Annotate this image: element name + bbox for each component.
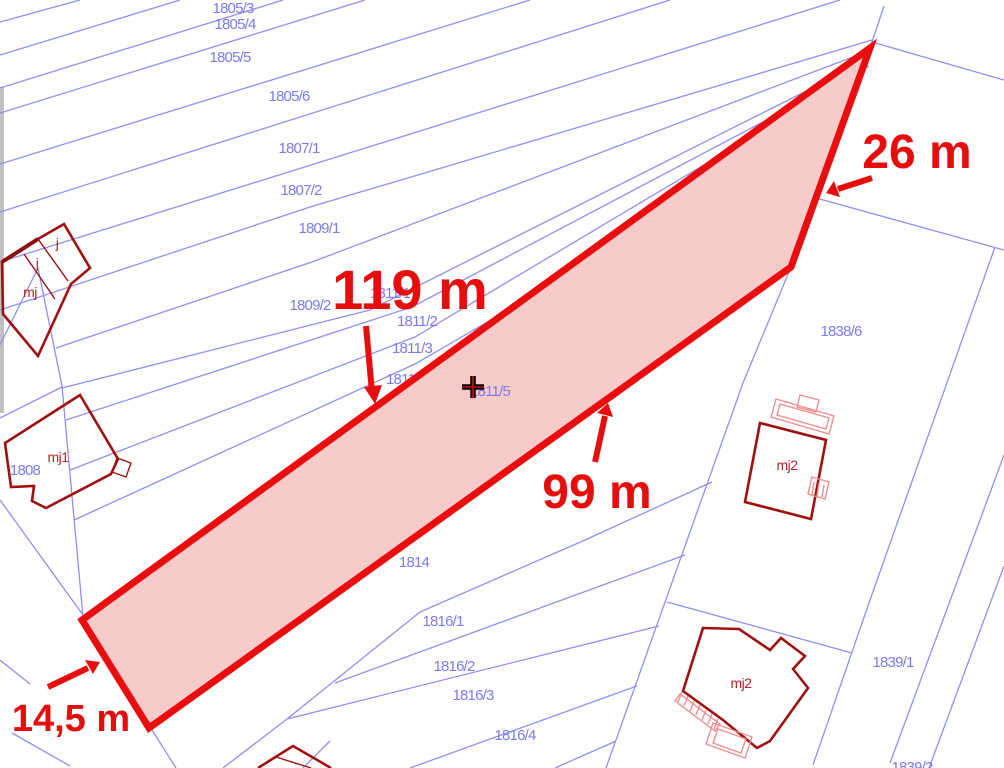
parcel-label: 1809/2 [289, 297, 331, 314]
parcel-label: 1814 [399, 554, 430, 571]
building-label: mj2 [776, 457, 798, 473]
parcel-label: 1816/4 [494, 727, 536, 744]
building-label: j [35, 255, 39, 271]
dimension-label-119m: 119 m [332, 258, 488, 321]
parcel-label: 1809/1 [298, 220, 340, 237]
building-partial-bottom [258, 746, 331, 768]
parcel-label: 1805/6 [268, 88, 310, 105]
parcel-label: 1805/5 [209, 49, 251, 66]
building-label: mj1 [47, 449, 69, 465]
dimension-label-99m: 99 m [542, 466, 651, 519]
building-label: j [55, 235, 59, 251]
dimension-arrow-99m [595, 416, 605, 462]
parcel-label: 1816/1 [422, 613, 464, 630]
dimension-arrow-14-5m [48, 668, 88, 687]
building-label: mj [23, 284, 37, 300]
building-label: mj2 [730, 675, 752, 691]
dimension-arrow-26m [838, 178, 872, 189]
building-mj2-lower [675, 628, 808, 758]
parcel-label: 1839/1 [872, 654, 914, 671]
parcel-label: 1807/2 [280, 182, 322, 199]
map-canvas[interactable]: 1805/3 1805/4 1805/5 1805/6 1807/1 1807/… [0, 0, 1004, 768]
parcel-label: 1811/3 [392, 340, 432, 357]
map-edge-bar [0, 87, 4, 413]
parcel-label: 1805/4 [214, 16, 256, 33]
parcel-label: 1838/6 [820, 323, 862, 340]
parcel-label: 1816/3 [452, 687, 494, 704]
dimension-label-14-5m: 14,5 m [12, 698, 130, 740]
cadastral-map-svg: 1805/3 1805/4 1805/5 1805/6 1807/1 1807/… [0, 0, 1004, 768]
parcel-label: 1839/2 [891, 759, 933, 768]
parcel-label: 1816/2 [433, 658, 475, 675]
building-j-mj [2, 224, 90, 356]
parcel-label: 1808 [10, 462, 41, 479]
dimension-label-26m: 26 m [862, 126, 971, 179]
dimension-arrow-119m [366, 326, 372, 392]
parcel-label: 1805/3 [212, 0, 254, 17]
parcel-label: 1807/1 [278, 140, 320, 157]
